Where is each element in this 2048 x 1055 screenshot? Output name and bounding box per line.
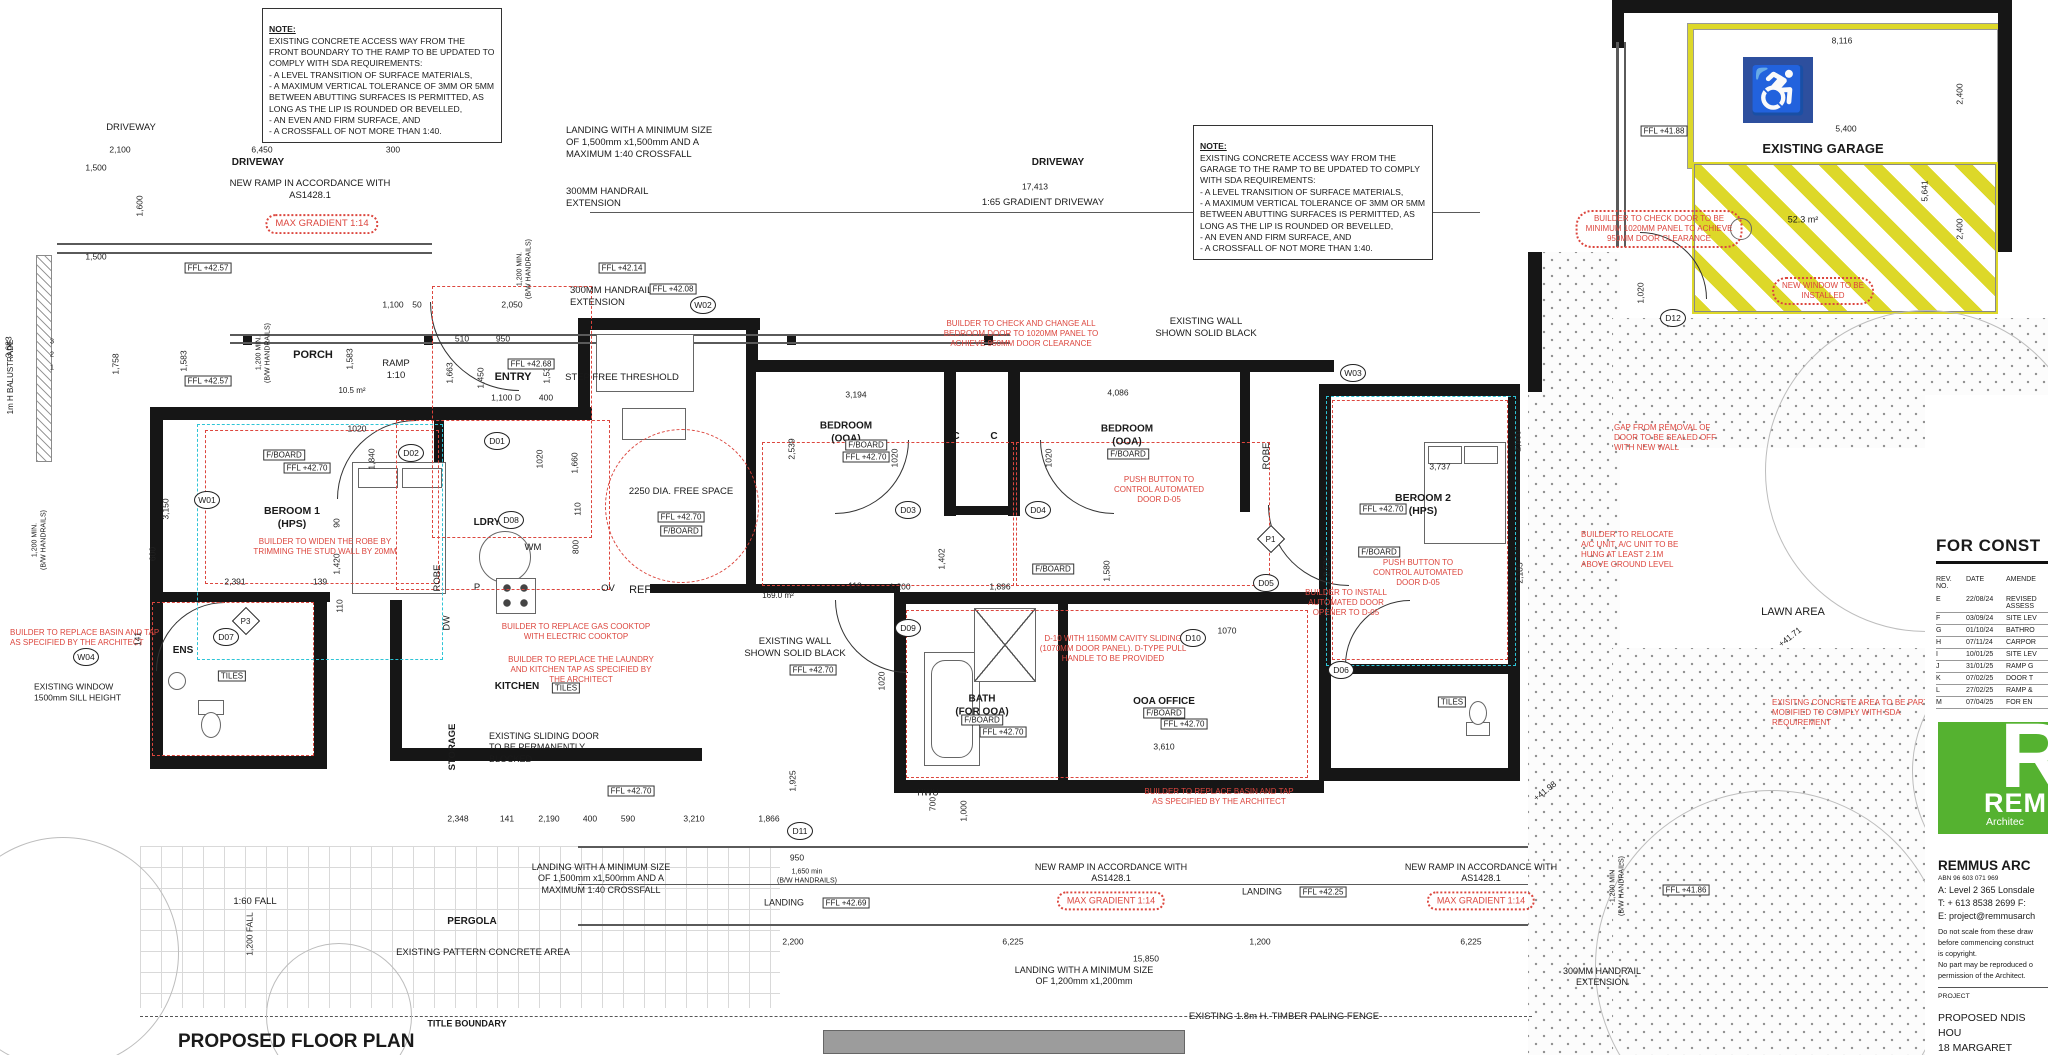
dimension-label: 50 [412, 300, 421, 311]
revision-row: F03/09/24SITE LEV [1936, 613, 2048, 625]
red-annotation: D-10 WITH 1150MM CAVITY SLIDING (1070MM … [1040, 634, 1187, 664]
ffl-level: FFL +42.70 [843, 452, 890, 463]
text-label: EXISTING WALL SHOWN SOLID BLACK [744, 636, 845, 660]
dimension-label: 141 [133, 632, 144, 646]
firm-phone: T: + 613 8538 2699 F: [1938, 898, 2048, 908]
text-label: DRIVEWAY [1032, 157, 1084, 170]
text-label: 1,200 MIN. (B/W HANDRAILS) [255, 323, 273, 383]
dimension-label: 1,500 [85, 252, 106, 263]
revision-cell: DATE [1966, 576, 2006, 590]
ffl-level: FFL +42.57 [185, 376, 232, 387]
dimension-label: 1020 [890, 449, 901, 468]
drawing-line [578, 846, 1528, 848]
dimension-label: 1,100 [382, 300, 403, 311]
text-label: EXISTING WINDOW 1500mm SILL HEIGHT [34, 681, 121, 702]
text-label: 1 [50, 362, 54, 371]
dimension-label: 1020 [877, 672, 888, 691]
revision-cell: J [1936, 663, 1966, 670]
firm-address: A: Level 2 365 Lonsdale [1938, 885, 2048, 895]
text-label: A/C [1513, 544, 1523, 557]
point-tag-label: P3 [241, 616, 251, 625]
revision-cell: AMENDE [2006, 576, 2048, 590]
dimension-label: 110 [335, 599, 346, 613]
logo-subtext: Architec [1986, 816, 2024, 828]
firm-abn: ABN 96 603 071 969 [1938, 875, 2048, 882]
room-label-bedroom1: BEROOM 1 (HPS) [264, 505, 320, 531]
text-label: 300MM HANDRAIL EXTENSION [1563, 966, 1641, 989]
dimension-label: 1,580 [1102, 560, 1113, 581]
material-label: F/BOARD [263, 450, 305, 461]
dimension-label: 1,100 D [491, 393, 521, 404]
firm-info-block: REMMUS ARC ABN 96 603 071 969 A: Level 2… [1938, 858, 2048, 1055]
text-label: 300MM HANDRAIL EXTENSION [570, 285, 652, 309]
door-tag: D07 [213, 628, 239, 646]
wall-segment [746, 360, 1334, 372]
dimension-label: 400 [583, 814, 597, 825]
dimension-label: 800 [571, 540, 582, 554]
door-tag: D11 [787, 822, 813, 840]
text-label: EXISTING WALL SHOWN SOLID BLACK [1155, 316, 1256, 340]
dimension-label: 1,200 [1249, 937, 1270, 948]
text-label: 2 [50, 349, 54, 358]
wall-segment [746, 318, 758, 372]
point-tag-label: P1 [1266, 534, 1276, 543]
logo-text: REM [1984, 788, 2047, 819]
revision-cell: RAMP & [2006, 687, 2048, 694]
modification-zone [1326, 396, 1516, 666]
revision-cell: E [1936, 596, 1966, 610]
note-body: EXISTING CONCRETE ACCESS WAY FROM THE GA… [1200, 153, 1425, 254]
text-label: 17,413 [1022, 182, 1048, 193]
dimension-label: 1,866 [758, 814, 779, 825]
text-label: REF. [629, 584, 653, 598]
revision-row: J31/01/25RAMP G [1936, 661, 2048, 673]
revision-cell: 10/01/25 [1966, 651, 2006, 658]
text-label: NEW RAMP IN ACCORDANCE WITH AS1428.1 [230, 178, 391, 202]
dimension-label: 6,225 [1460, 937, 1481, 948]
text-label: 1,200 MIN (B/W HANDRAILS) [1609, 856, 1627, 916]
note-box-front-boundary: NOTE:EXISTING CONCRETE ACCESS WAY FROM T… [262, 8, 502, 143]
text-label: EXISTING PATTERN CONCRETE AREA [396, 947, 570, 959]
pergola-label: PERGOLA [447, 916, 496, 929]
text-label: 1,650 min (B/W HANDRAILS) [777, 868, 837, 886]
revision-cell: SITE LEV [2006, 615, 2048, 622]
ffl-level: FFL +42.70 [284, 463, 331, 474]
dimension-label: 1,420 [332, 553, 343, 574]
text-label: 10.5 m² [338, 386, 365, 396]
dimension-label: 3,150 [161, 498, 172, 519]
remmus-logo: R REM Architec [1938, 722, 2048, 834]
ffl-level: FFL +42.70 [1360, 504, 1407, 515]
free-space-circle [605, 429, 759, 583]
ffl-level: FFL +42.69 [823, 898, 870, 909]
revision-cell: 27/02/25 [1966, 687, 2006, 694]
text-label: NEW RAMP IN ACCORDANCE WITH AS1428.1 [1405, 862, 1557, 885]
dimension-label: 3,683 [4, 336, 15, 357]
wall-segment [1612, 0, 2010, 13]
material-label: F/BOARD [1358, 547, 1400, 558]
dimension-label: 6,225 [1002, 937, 1023, 948]
dimension-label: 2,185 [1515, 562, 1526, 583]
red-annotation: NEW WINDOW TO BE INSTALLED [1772, 277, 1874, 305]
revision-cell: CARPOR [2006, 639, 2048, 646]
text-label: DW [441, 616, 452, 631]
revision-cell: M [1936, 699, 1966, 706]
dimension-label: 2,100 [109, 145, 130, 156]
dimension-label: 2,190 [538, 814, 559, 825]
text-label: LANDING [1242, 886, 1282, 897]
text-label: MAX GRADIENT 1:14 [1427, 891, 1535, 910]
room-label-ens: ENS [173, 645, 194, 658]
revision-row: E22/08/24REVISED ASSESS [1936, 594, 2048, 613]
drawing-status: FOR CONST [1936, 536, 2048, 564]
dimension-label: 300 [386, 145, 400, 156]
text-label: 2250 DIA. FREE SPACE [629, 486, 733, 498]
dimension-label: 110 [573, 502, 584, 516]
dimension-label: 950 [496, 334, 510, 345]
text-label: 1:65 GRADIENT DRIVEWAY [982, 197, 1104, 209]
ffl-level: FFL +42.08 [650, 284, 697, 295]
dimension-label: 2,391 [224, 577, 245, 588]
material-label: TILES [552, 683, 580, 694]
room-label-bedroom-ooa-2: BEDROOM (OOA) [1101, 424, 1153, 449]
dimension-label: 400 [539, 393, 553, 404]
dimension-label: 510 [455, 334, 469, 345]
dimension-label: 1,500 [85, 163, 106, 174]
project-label: PROJECT [1938, 992, 2048, 1007]
text-label: ROBE [432, 565, 444, 592]
dimension-label: 2,000 [1513, 430, 1524, 451]
dimension-label: 1,840 [367, 448, 378, 469]
dimension-label: 90 [332, 518, 343, 527]
revision-table: REV. NO.DATEAMENDEE22/08/24REVISED ASSES… [1936, 574, 2048, 709]
revision-cell: 07/02/25 [1966, 675, 2006, 682]
wall-segment [1998, 0, 2012, 252]
ffl-level: FFL +42.57 [185, 263, 232, 274]
red-annotation: PUSH BUTTON TO CONTROL AUTOMATED DOOR D-… [1373, 558, 1463, 588]
dimension-label: 590 [621, 814, 635, 825]
ffl-level: FFL +42.14 [599, 263, 646, 274]
dimension-label: 2,050 [501, 300, 522, 311]
door-tag: D06 [1328, 661, 1354, 679]
dimension-label: 2,533 [1322, 555, 1333, 576]
page-title: PROPOSED FLOOR PLAN [178, 1030, 414, 1054]
revision-cell: REVISED ASSESS [2006, 596, 2048, 610]
revision-cell: SITE LEV [2006, 651, 2048, 658]
door-tag: D12 [1660, 309, 1686, 327]
ffl-level: FFL +42.70 [608, 786, 655, 797]
red-annotation: BUILDER TO RELOCATE A/C UNIT. A/C UNIT T… [1581, 530, 1678, 570]
dimension-label: 1020 [1044, 449, 1055, 468]
red-annotation: BUILDER TO REPLACE BASIN AND TAP AS SPEC… [1144, 787, 1293, 807]
material-label: F/BOARD [660, 526, 702, 537]
text-label: DRIVEWAY [232, 157, 284, 170]
dimension-label: 1,600 [135, 195, 146, 216]
room-label-ramp: RAMP 1:10 [382, 358, 409, 382]
room-label-porch: PORCH [293, 349, 333, 363]
dimension-label: 3,737 [1429, 462, 1450, 473]
dimension-label: 1,663 [445, 362, 456, 383]
revision-cell: 03/09/24 [1966, 615, 2006, 622]
lawn-area-label: LAWN AREA [1761, 606, 1825, 620]
ffl-level: FFL +42.70 [980, 727, 1027, 738]
text-label: C [952, 431, 959, 444]
text-label: WM [525, 542, 542, 554]
text-label: LANDING WITH A MINIMUM SIZE OF 1,500mm x… [566, 125, 712, 161]
revision-cell: RAMP G [2006, 663, 2048, 670]
dimension-label: 141 [500, 814, 514, 825]
room-label-laundry: LDRY [474, 517, 501, 530]
text-label: 169.0 m² [762, 591, 794, 601]
wall-segment [1612, 0, 1624, 48]
text-label: 300MM HANDRAIL EXTENSION [566, 186, 648, 210]
furniture-outline [1469, 701, 1487, 725]
drawing-line [578, 924, 1528, 926]
material-label: TILES [1438, 697, 1466, 708]
firm-name: REMMUS ARC [1938, 858, 2048, 873]
floor-plan-canvas: ♿ NOTE:EXISTING CONCRETE ACCESS WAY FROM… [0, 0, 2048, 1055]
note-box-garage: NOTE:EXISTING CONCRETE ACCESS WAY FROM T… [1193, 125, 1433, 260]
dimension-label: 1,450 [476, 367, 487, 388]
revision-cell: BATHRO [2006, 627, 2048, 634]
red-annotation: PUSH BUTTON TO CONTROL AUTOMATED DOOR D-… [1114, 475, 1204, 505]
text-label: 1,200 MIN. (B/W HANDRAILS) [516, 239, 534, 299]
wall-segment [894, 592, 1324, 604]
dimension-label: 110 [848, 581, 862, 592]
room-label-entry: ENTRY [495, 371, 532, 385]
text-label: DRIVEWAY [106, 122, 156, 134]
dimension-label: 15,850 [1133, 954, 1159, 965]
revision-cell: I [1936, 651, 1966, 658]
firm-disclaimer: Do not scale from these draw before comm… [1938, 927, 2048, 988]
revision-row: L27/02/25RAMP & [1936, 685, 2048, 697]
revision-row: H07/11/24CARPOR [1936, 637, 2048, 649]
material-label: F/BOARD [1107, 449, 1149, 460]
text-label: LANDING WITH A MINIMUM SIZE OF 1,500mm x… [532, 862, 671, 896]
text-label: NEW RAMP IN ACCORDANCE WITH AS1428.1 [1035, 862, 1187, 885]
dimension-label: 2,539 [787, 438, 798, 459]
dimension-label: 1,896 [989, 582, 1010, 593]
revision-cell: K [1936, 675, 1966, 682]
text-label: LANDING WITH A MINIMUM SIZE OF 1,200mm x… [1015, 965, 1154, 988]
firm-email: E: project@remmusarch [1938, 911, 2048, 921]
text-label: MAX GRADIENT 1:14 [265, 214, 378, 234]
dimension-label: 1,583 [179, 350, 190, 371]
text-label: TITLE BOUNDARY [427, 1018, 506, 1029]
revision-row: I10/01/25SITE LEV [1936, 649, 2048, 661]
dimension-label: 950 [790, 853, 804, 864]
text-label: 1,200 FALL [245, 912, 256, 955]
text-label: OV [601, 583, 615, 595]
red-annotation: EXISITNG CONCRETE AREA TO BE PARTIALLY M… [1772, 698, 1950, 728]
dimension-label: 4,086 [1107, 388, 1128, 399]
dimension-label: 1,660 [570, 452, 581, 473]
text-label: C [990, 431, 997, 444]
dimension-label: 1,758 [111, 353, 122, 374]
text-label: EXISTING 1.8m H. TIMBER PALING FENCE [1189, 1011, 1379, 1023]
window-tag: W02 [690, 296, 716, 314]
ffl-level: FFL +42.70 [1161, 719, 1208, 730]
dimension-label: 6,450 [251, 145, 272, 156]
red-annotation: BUILDER TO CHECK AND CHANGE ALL BEDROOM … [944, 319, 1099, 349]
dimension-label: 3,194 [845, 390, 866, 401]
ffl-level: FFL +42.25 [1300, 887, 1347, 898]
text-label: 1,200 MIN. (B/W HANDRAILS) [31, 510, 49, 570]
dimension-label: 600 [148, 547, 159, 561]
revision-cell: 22/08/24 [1966, 596, 2006, 610]
revision-cell: DOOR T [2006, 675, 2048, 682]
ffl-level: FFL +41.88 [1641, 126, 1688, 137]
wall-segment [1319, 768, 1520, 781]
revision-cell: F [1936, 615, 1966, 622]
revision-row: M07/04/25FOR EN [1936, 697, 2048, 709]
text-label: ROBE [1261, 443, 1273, 470]
dimension-label: 8,116 [1832, 36, 1853, 47]
sda-clearance-zone [762, 442, 1014, 586]
dimension-label: 2,200 [782, 937, 803, 948]
text-label: LANDING [764, 897, 804, 908]
note-heading: NOTE: [1200, 141, 1426, 152]
dimension-label: 1,925 [788, 770, 799, 791]
door-tag: D02 [398, 444, 424, 462]
door-swing [835, 600, 908, 673]
dimension-label: 2,348 [447, 814, 468, 825]
dimension-label: 5,641 [1920, 180, 1931, 201]
dimension-label: 3,210 [683, 814, 704, 825]
text-label: P [474, 582, 480, 594]
material-label: TILES [218, 671, 246, 682]
revision-row: K07/02/25DOOR T [1936, 673, 2048, 685]
door-tag: D01 [484, 432, 510, 450]
ffl-level: FFL +42.68 [508, 359, 555, 370]
dimension-label: +41.71 [1776, 625, 1803, 650]
dimension-label: 139 [313, 577, 327, 588]
room-label-storage: STORAGE [447, 724, 459, 771]
dimension-label: 700 [928, 797, 939, 811]
door-tag: D09 [895, 619, 921, 637]
window-tag: W04 [73, 648, 99, 666]
dimension-label: 1,583 [345, 348, 356, 369]
red-annotation: BUILDER TO CHECK DOOR TO BE MINIMUM 1020… [1576, 210, 1743, 248]
revision-cell: 07/11/24 [1966, 639, 2006, 646]
text-label: 3 [50, 336, 54, 345]
revision-row: G01/10/24BATHRO [1936, 625, 2048, 637]
revision-cell: 07/04/25 [1966, 699, 2006, 706]
room-label-office: OOA OFFICE [1133, 696, 1195, 709]
wall-segment [578, 318, 760, 330]
window-tag: W01 [194, 491, 220, 509]
note-heading: NOTE: [269, 24, 495, 35]
revision-cell: L [1936, 687, 1966, 694]
material-label: F/BOARD [961, 715, 1003, 726]
wall-segment [1528, 252, 1542, 392]
door-tag: D03 [895, 501, 921, 519]
red-annotation: BUILDER TO WIDEN THE ROBE BY TRIMMING TH… [253, 537, 396, 557]
revision-cell: H [1936, 639, 1966, 646]
red-annotation: BUILDER TO REPLACE GAS COOKTOP WITH ELEC… [502, 622, 651, 642]
wall-segment [1319, 384, 1520, 396]
dimension-label: 5,400 [1835, 124, 1856, 135]
revision-cell: G [1936, 627, 1966, 634]
revision-header-row: REV. NO.DATEAMENDE [1936, 574, 2048, 594]
drawing-line [57, 243, 432, 245]
dimension-label: 1,020 [1636, 282, 1647, 303]
dimension-label: 1,000 [959, 800, 970, 821]
window-tag: W03 [1340, 364, 1366, 382]
timber-paling-fence [823, 1030, 1185, 1054]
red-annotation: BUILDER TO REPLACE THE LAUNDRY AND KITCH… [508, 655, 654, 685]
revision-cell: REV. NO. [1936, 576, 1966, 590]
dimension-label: 3,610 [1153, 742, 1174, 753]
dimension-label: 1020 [348, 424, 367, 435]
dimension-label: 2,400 [1955, 218, 1966, 239]
dimension-label: 1070 [1218, 626, 1237, 637]
revision-cell: FOR EN [2006, 699, 2048, 706]
text-label: 1:60 FALL [233, 896, 276, 908]
door-tag: D08 [498, 511, 524, 529]
text-label: MAX GRADIENT 1:14 [1057, 891, 1165, 910]
ffl-level: FFL +41.86 [1663, 885, 1710, 896]
material-label: F/BOARD [845, 440, 887, 451]
revision-cell: 01/10/24 [1966, 627, 2006, 634]
revision-cell: 31/01/25 [1966, 663, 2006, 670]
accessible-parking-icon: ♿ [1743, 57, 1813, 123]
dimension-label: 1,402 [937, 548, 948, 569]
door-tag: D10 [1180, 629, 1206, 647]
door-tag: D05 [1253, 574, 1279, 592]
ffl-level: FFL +42.70 [658, 512, 705, 523]
dimension-label: 2,400 [1955, 83, 1966, 104]
material-label: F/BOARD [1032, 564, 1074, 575]
wall-segment [150, 756, 326, 769]
text-label: STEP FREE THRESHOLD [565, 372, 679, 384]
existing-garage-label: EXISTING GARAGE [1762, 141, 1883, 157]
project-title: PROPOSED NDIS HOU 18 MARGARET STREE BERW… [1938, 1011, 2048, 1055]
red-annotation: GAP FROM REMOVAL OF DOOR TO BE SEALED OF… [1614, 423, 1716, 453]
note-body: EXISTING CONCRETE ACCESS WAY FROM THE FR… [269, 36, 494, 137]
drawing-line [57, 252, 432, 254]
dimension-label: 1,200 [889, 582, 910, 593]
material-label: F/BOARD [1143, 708, 1185, 719]
text-label: EXISTING SLIDING DOOR TO BE PERMANENTLY … [489, 731, 599, 765]
text-label: 52.3 m² [1788, 214, 1819, 225]
door-tag: D04 [1025, 501, 1051, 519]
dimension-label: 1020 [535, 450, 546, 469]
red-annotation: BUILDER TO INSTALL AUTOMATED DOOR OPENER… [1305, 588, 1387, 618]
ffl-level: FFL +42.70 [790, 665, 837, 676]
